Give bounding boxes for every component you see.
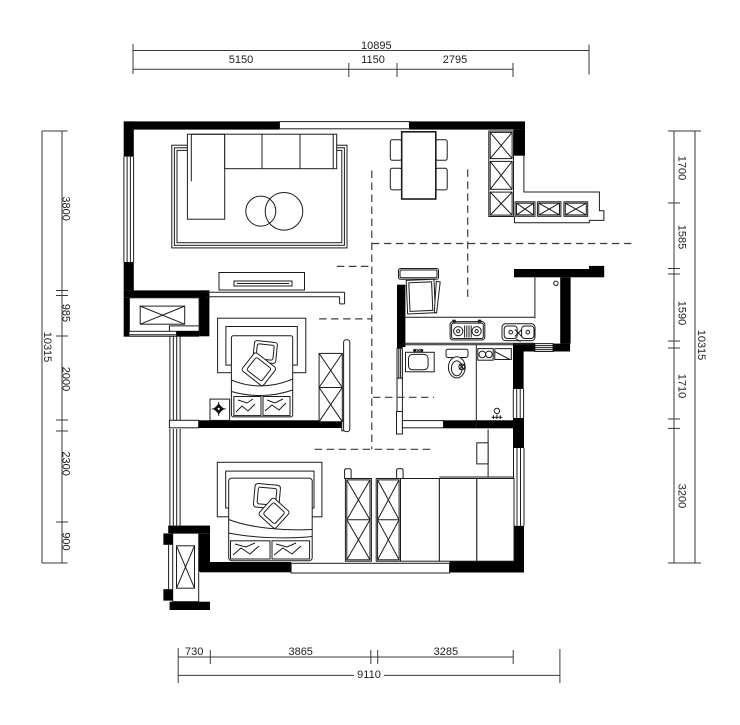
svg-text:2000: 2000 — [60, 367, 72, 391]
svg-text:985: 985 — [60, 304, 72, 322]
svg-text:3285: 3285 — [434, 646, 458, 658]
svg-text:1700: 1700 — [676, 156, 688, 180]
svg-text:900: 900 — [60, 532, 72, 550]
svg-text:1150: 1150 — [361, 54, 385, 66]
svg-text:730: 730 — [185, 646, 203, 658]
svg-text:2300: 2300 — [60, 451, 72, 475]
svg-text:9110: 9110 — [357, 669, 381, 681]
svg-text:10315: 10315 — [695, 330, 707, 361]
svg-text:3200: 3200 — [676, 484, 688, 508]
svg-text:10895: 10895 — [361, 40, 392, 52]
svg-text:5150: 5150 — [229, 54, 253, 66]
svg-text:10315: 10315 — [41, 332, 53, 363]
svg-text:2795: 2795 — [443, 54, 467, 66]
svg-text:1585: 1585 — [676, 225, 688, 249]
svg-text:3800: 3800 — [60, 196, 72, 220]
svg-text:1710: 1710 — [676, 374, 688, 398]
svg-text:3865: 3865 — [288, 646, 312, 658]
svg-text:1590: 1590 — [676, 301, 688, 325]
